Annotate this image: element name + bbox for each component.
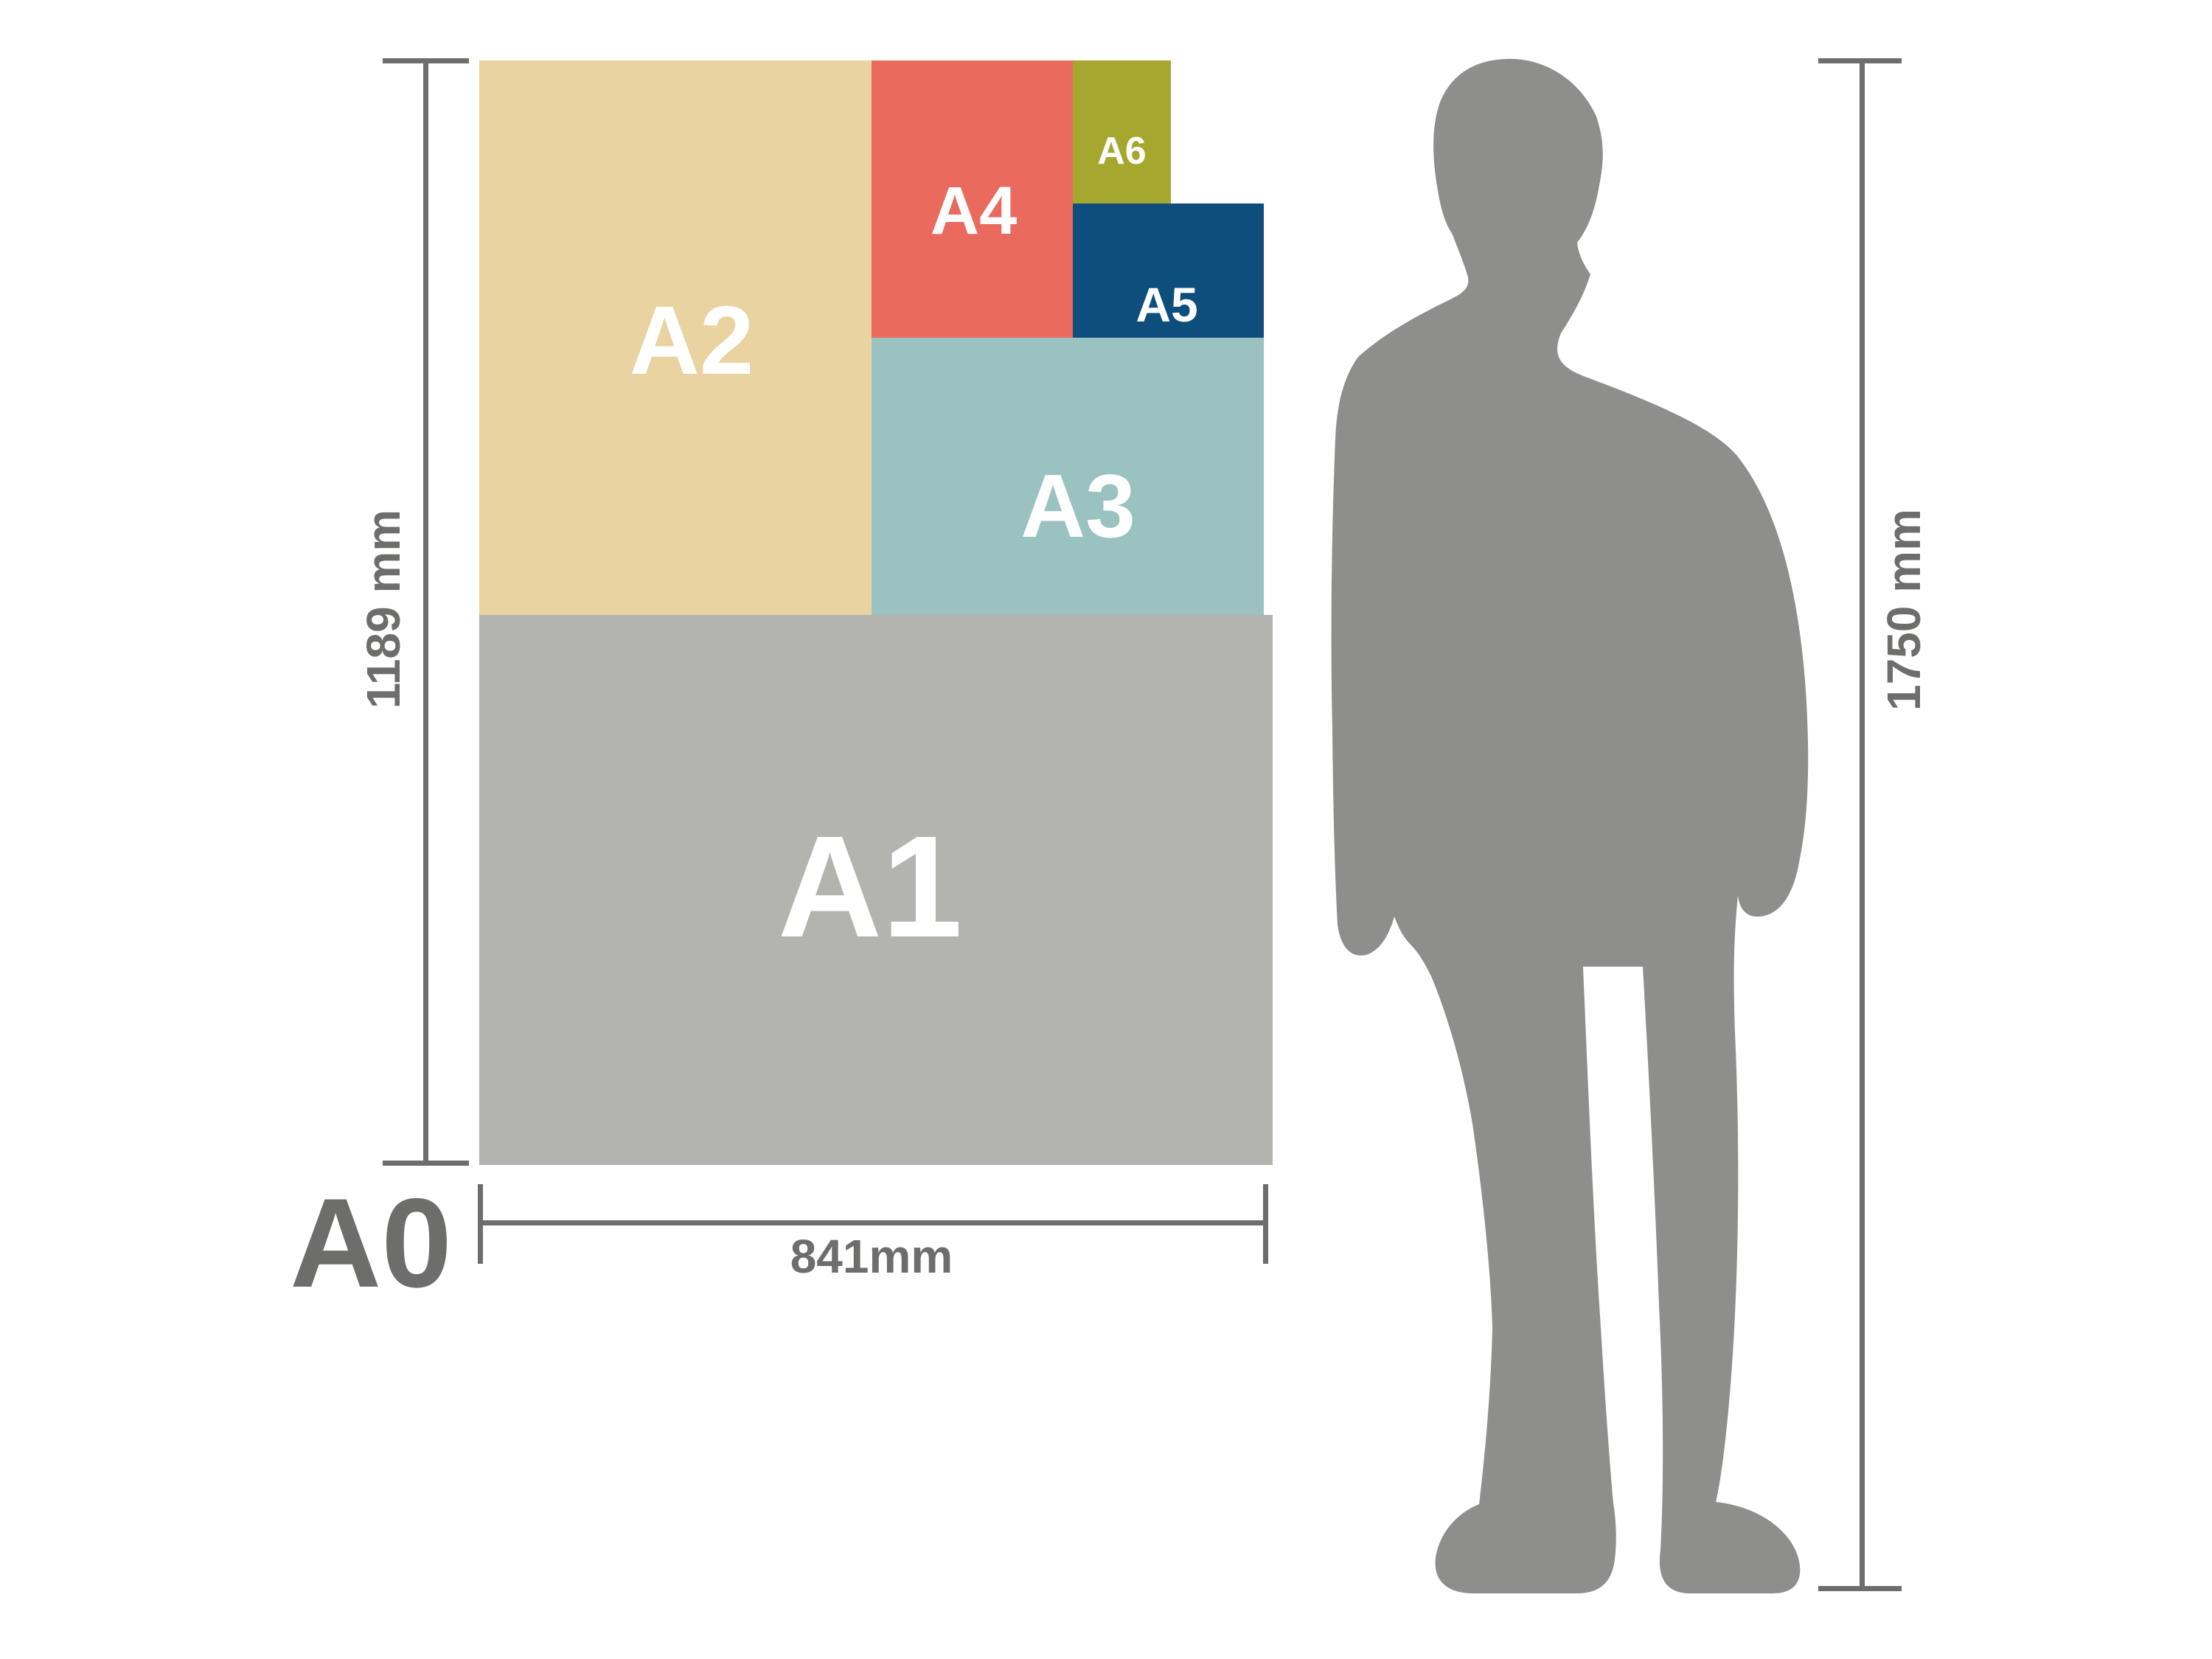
person-height-dimension-cap-bottom (1818, 1586, 1902, 1591)
a5-paper-panel: A5 (1073, 204, 1264, 338)
paper-size-comparison-diagram: A2 A4 A6 A5 A3 A1 1189 mm 841mm 1750 mm … (0, 0, 2212, 1659)
person-height-dimension-cap-top (1818, 58, 1902, 63)
width-dimension-cap-left (478, 1184, 483, 1264)
person-height-label: 1750 mm (1880, 455, 1927, 765)
a3-label: A3 (1020, 461, 1135, 551)
a2-label: A2 (630, 292, 754, 389)
person-height-dimension-line (1860, 60, 1865, 1591)
a1-label: A1 (778, 815, 963, 959)
person-silhouette-shape (1332, 59, 1809, 1593)
a5-label: A5 (1135, 280, 1197, 329)
a3-paper-panel: A3 (872, 338, 1264, 615)
a2-paper-panel: A2 (479, 60, 872, 615)
a4-label: A4 (931, 177, 1018, 245)
a4-paper-panel: A4 (872, 60, 1073, 338)
width-dimension-line (479, 1220, 1268, 1225)
a0-height-label: 1189 mm (360, 454, 407, 764)
a0-width-label: 841mm (717, 1233, 1026, 1280)
height-dimension-cap-top (383, 58, 469, 63)
a6-paper-panel: A6 (1073, 60, 1171, 204)
width-dimension-cap-right (1263, 1184, 1268, 1264)
a6-label: A6 (1097, 132, 1146, 170)
height-dimension-line (423, 60, 428, 1165)
height-dimension-cap-bottom (383, 1161, 469, 1166)
a0-base-label: A0 (279, 1180, 463, 1307)
person-silhouette (1312, 44, 1829, 1607)
a1-paper-panel: A1 (479, 615, 1273, 1165)
